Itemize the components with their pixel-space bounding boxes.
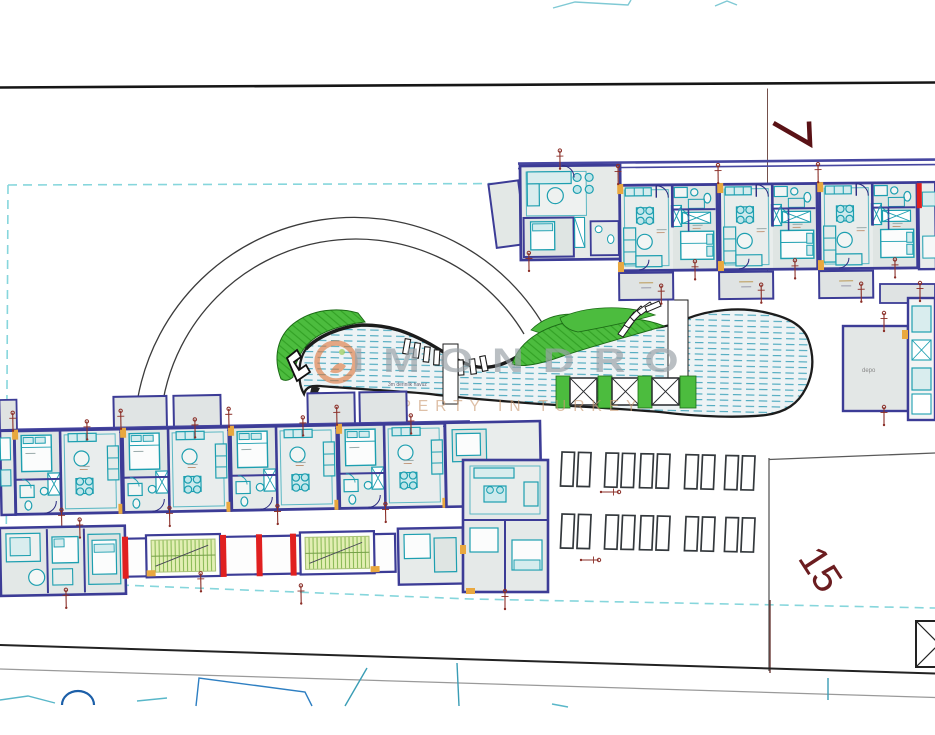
- svg-text:depo: depo: [862, 368, 876, 374]
- svg-text:IMONDRO: IMONDRO: [352, 341, 698, 379]
- svg-text:3m derinlik havuz: 3m derinlik havuz: [388, 382, 427, 388]
